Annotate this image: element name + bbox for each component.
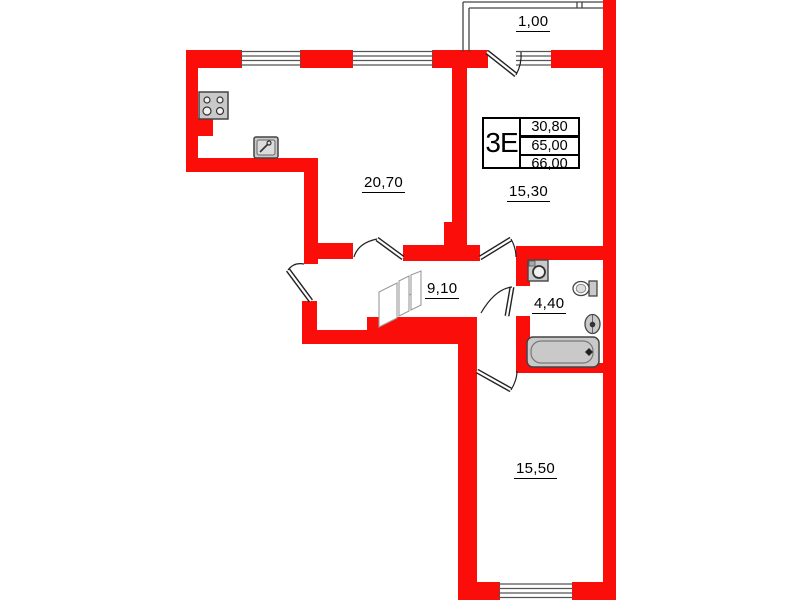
wall-segment bbox=[458, 317, 477, 582]
door-room1 bbox=[480, 239, 516, 258]
wall-segment bbox=[572, 582, 616, 600]
window bbox=[516, 52, 551, 66]
wall-segment bbox=[432, 50, 488, 68]
door-balcony bbox=[487, 52, 521, 75]
toilet-icon bbox=[573, 281, 597, 296]
wall-segment bbox=[300, 50, 353, 68]
flat-type-cell: 3Е bbox=[484, 119, 521, 167]
window bbox=[240, 52, 302, 66]
room-label-hallway: 9,10 bbox=[425, 280, 459, 299]
wall-segment bbox=[551, 50, 603, 68]
window bbox=[498, 584, 573, 598]
room-label-room1: 15,30 bbox=[507, 183, 550, 202]
wall-segment bbox=[516, 258, 530, 286]
flat-areas-column: 30,80 65,00 66,00 bbox=[521, 119, 578, 167]
room-label-bathroom: 4,40 bbox=[532, 295, 566, 314]
wall-segment bbox=[603, 0, 616, 600]
wall-segment bbox=[452, 68, 467, 260]
wall-segment bbox=[198, 118, 213, 136]
wall-segment bbox=[186, 50, 198, 172]
washing-machine-icon bbox=[528, 260, 548, 281]
wall-segment bbox=[516, 363, 603, 373]
area-main-cell: 65,00 bbox=[521, 136, 578, 156]
sink-icon bbox=[254, 137, 278, 158]
window bbox=[352, 52, 434, 66]
wall-segment bbox=[304, 243, 353, 259]
room-label-balcony: 1,00 bbox=[516, 13, 550, 32]
area-total-cell: 66,00 bbox=[521, 156, 578, 172]
room-label-kitchen-living: 20,70 bbox=[362, 174, 405, 193]
wall-segment bbox=[403, 245, 480, 261]
wall-segment bbox=[186, 158, 318, 172]
room-label-room2: 15,50 bbox=[514, 460, 557, 479]
flat-summary-table: 3Е 30,80 65,00 66,00 bbox=[482, 117, 580, 169]
washbasin-icon bbox=[585, 315, 600, 334]
area-living-cell: 30,80 bbox=[521, 119, 578, 136]
floor-plan: 1,00 20,70 15,30 9,10 4,40 15,50 3Е 30,8… bbox=[0, 0, 800, 600]
wall-segment bbox=[302, 330, 368, 344]
door-room2 bbox=[477, 371, 517, 390]
door-entrance bbox=[288, 264, 311, 301]
stove-icon bbox=[199, 92, 228, 119]
wall-segment bbox=[302, 301, 317, 331]
door-bathroom bbox=[481, 287, 512, 316]
door-kitchen-living bbox=[354, 239, 403, 258]
wall-segment bbox=[458, 582, 500, 600]
